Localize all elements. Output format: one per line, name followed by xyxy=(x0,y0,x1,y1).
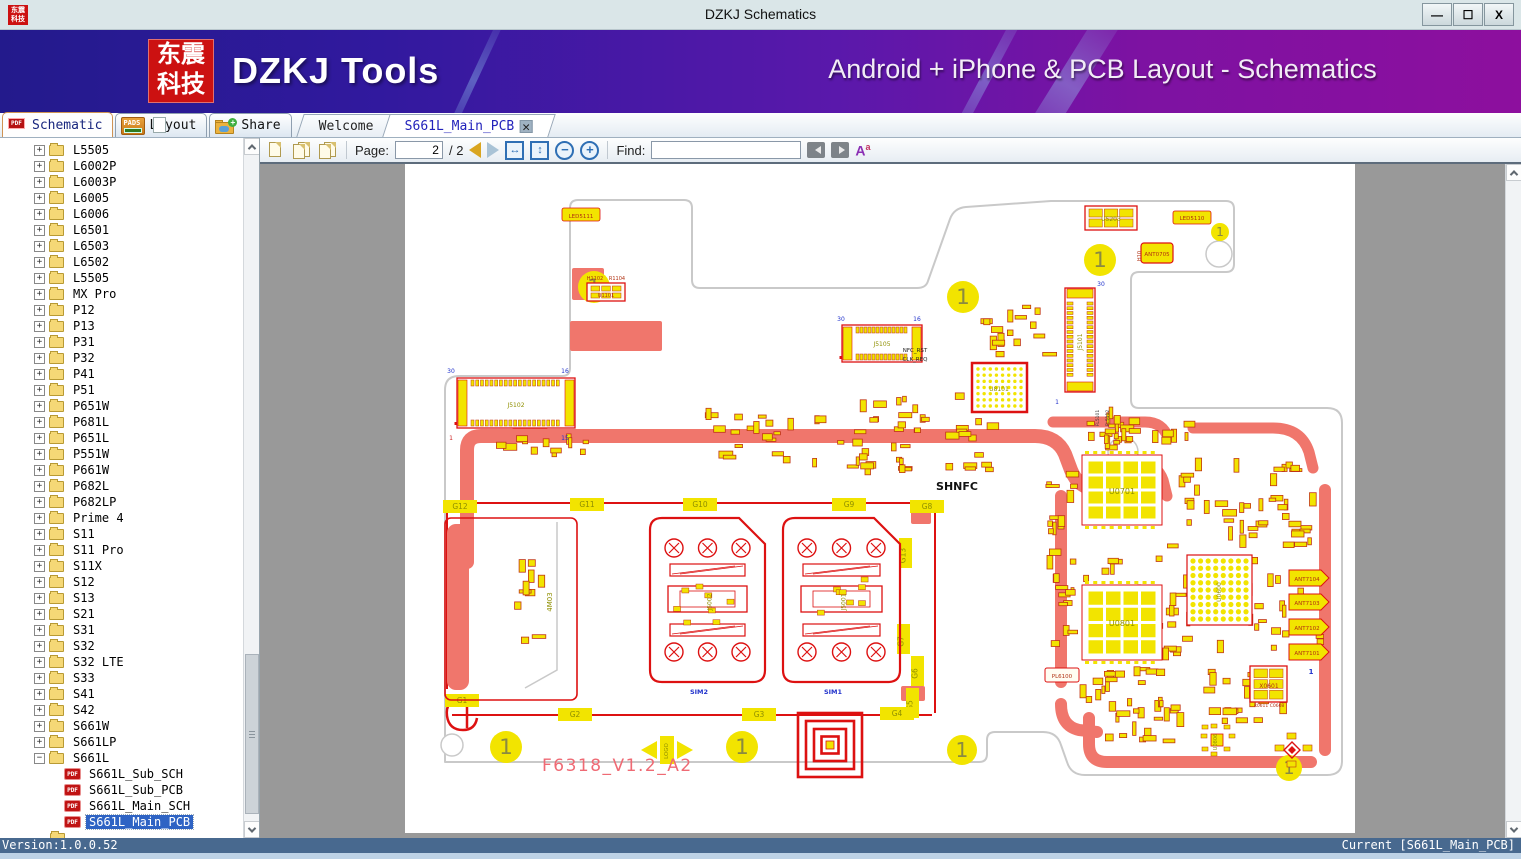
svg-text:G2: G2 xyxy=(570,710,581,719)
tree-expand-icon[interactable]: + xyxy=(34,625,45,636)
status-bar-strip xyxy=(0,853,1521,859)
tree-folder-p551w[interactable]: +P551W xyxy=(0,446,243,462)
fit-width-button[interactable]: ↔ xyxy=(505,141,524,160)
tree-expand-icon[interactable]: + xyxy=(34,321,45,332)
tree-guide xyxy=(0,830,50,838)
svg-text:U8101: U8101 xyxy=(989,386,1009,393)
tree-folder-l6006[interactable]: +L6006 xyxy=(0,206,243,222)
svg-text:J5101: J5101 xyxy=(1077,333,1084,351)
tree-doc-s661l_sub_pcb[interactable]: PDFS661L_Sub_PCB xyxy=(0,782,243,798)
svg-text:1: 1 xyxy=(956,285,970,310)
find-previous-button[interactable] xyxy=(807,142,825,158)
tree-item-label: L5505 xyxy=(70,271,112,285)
tree-item-label: P551W xyxy=(70,447,112,461)
tree-folder-l5505[interactable]: +L5505 xyxy=(0,270,243,286)
tree-expand-icon[interactable]: − xyxy=(34,753,45,764)
tree-item-label: S32 xyxy=(70,639,98,653)
share-folder-icon: + xyxy=(215,118,237,134)
tree-expand-icon[interactable]: + xyxy=(34,273,45,284)
svg-text:1: 1 xyxy=(735,735,749,760)
tree-item-label: P651L xyxy=(70,431,112,445)
tab-share[interactable]: +Share xyxy=(209,113,291,137)
tree-guide xyxy=(0,142,34,158)
current-document-text: Current [S661L_Main_PCB] xyxy=(1342,838,1515,853)
tree-guide xyxy=(0,558,34,574)
tree-expand-icon[interactable]: + xyxy=(34,401,45,412)
page-properties-icon[interactable] xyxy=(266,141,286,159)
tree-item-label: S661L_Main_SCH xyxy=(86,799,193,813)
tree-folder-s661w[interactable]: +S661W xyxy=(0,718,243,734)
svg-text:G6: G6 xyxy=(911,668,920,679)
rotate-page-left-icon[interactable] xyxy=(292,141,312,159)
tree-folder-l6503[interactable]: +L6503 xyxy=(0,238,243,254)
tree-guide xyxy=(0,622,34,638)
tree-folder-l6502[interactable]: +L6502 xyxy=(0,254,243,270)
tree-item-label: P651W xyxy=(70,399,112,413)
tree-expand-icon[interactable]: + xyxy=(34,641,45,652)
folder-icon xyxy=(49,641,64,652)
chevron-down-icon xyxy=(248,824,256,832)
tree-item-label: S661L_Sub_PCB xyxy=(86,783,186,797)
tree-folder-l6501[interactable]: +L6501 xyxy=(0,222,243,238)
tree-guide xyxy=(0,510,34,526)
tree-item-label: S661LP xyxy=(70,735,119,749)
tree-expand-icon[interactable]: + xyxy=(34,161,45,172)
tree-folder-s11-pro[interactable]: +S11 Pro xyxy=(0,542,243,558)
tree-guide xyxy=(0,718,34,734)
tree-folder-prime-4[interactable]: +Prime 4 xyxy=(0,510,243,526)
folder-icon xyxy=(49,273,64,284)
tree-guide xyxy=(0,686,34,702)
doc-tab-label: S661L_Main_PCB xyxy=(405,119,515,134)
tree-expand-icon[interactable]: + xyxy=(34,545,45,556)
svg-text:16: 16 xyxy=(561,368,569,375)
tree-folder-p651l[interactable]: +P651L xyxy=(0,430,243,446)
svg-text:1: 1 xyxy=(1309,668,1314,676)
tree-folder-s32[interactable]: +S32 xyxy=(0,638,243,654)
folder-icon xyxy=(49,209,64,220)
tree-expand-icon[interactable]: + xyxy=(34,417,45,428)
svg-text:U0806: U0806 xyxy=(1213,734,1219,750)
tree-guide xyxy=(0,638,34,654)
folder-icon xyxy=(49,401,64,412)
tree-item-label: P682L xyxy=(70,479,112,493)
svg-text:ANT0705: ANT0705 xyxy=(1144,252,1170,258)
tree-item-label: L5505 xyxy=(70,143,112,157)
svg-text:J5105: J5105 xyxy=(872,341,890,348)
tree-item-label: L6003P xyxy=(70,175,119,189)
banner-tagline: Android + iPhone & PCB Layout - Schemati… xyxy=(790,54,1415,85)
viewer-scroll-down-button[interactable] xyxy=(1506,821,1521,838)
viewer-toolbar: Page: / 2 ↔ ↕ − + Find: Aa xyxy=(260,138,1521,164)
tree-expand-icon[interactable]: + xyxy=(34,577,45,588)
folder-icon xyxy=(49,497,64,508)
tree-guide xyxy=(0,334,34,350)
tree-folder-s12[interactable]: +S12 xyxy=(0,574,243,590)
find-label: Find: xyxy=(616,143,645,158)
tree-expand-icon[interactable]: + xyxy=(34,385,45,396)
tree-item-label: S11 xyxy=(70,527,98,541)
tree-item-label: S42 xyxy=(70,703,98,717)
tree-guide xyxy=(0,286,34,302)
tree-guide xyxy=(0,494,34,510)
tree-folder-s13[interactable]: +S13 xyxy=(0,590,243,606)
close-tab-icon[interactable]: ✕ xyxy=(520,120,533,133)
folder-icon xyxy=(49,657,64,668)
tree-expand-icon[interactable]: + xyxy=(34,689,45,700)
model-tree: +L5505+L6002P+L6003P+L6005+L6006+L6501+L… xyxy=(0,142,243,838)
tree-item-label: P661W xyxy=(70,463,112,477)
tree-expand-icon[interactable]: + xyxy=(34,481,45,492)
tree-guide xyxy=(0,318,34,334)
tree-item-label: L6502 xyxy=(70,255,112,269)
tree-guide xyxy=(0,158,34,174)
tree-item-label: S12 xyxy=(70,575,98,589)
pdf-file-icon: PDF xyxy=(64,768,81,780)
svg-text:CLK_REQ: CLK_REQ xyxy=(903,357,929,363)
tree-folder-p32[interactable]: +P32 xyxy=(0,350,243,366)
svg-text:4M03: 4M03 xyxy=(546,592,554,611)
tree-expand-icon[interactable]: + xyxy=(34,209,45,220)
next-page-button[interactable] xyxy=(487,142,499,158)
folder-icon xyxy=(49,577,64,588)
tree-guide xyxy=(0,734,34,750)
svg-text:G4: G4 xyxy=(892,709,903,718)
svg-text:U0600: U0600 xyxy=(1216,582,1223,602)
tree-guide xyxy=(0,174,34,190)
tree-guide xyxy=(0,446,34,462)
tree-folder-p661w[interactable]: +P661W xyxy=(0,462,243,478)
document-viewer: Page: / 2 ↔ ↕ − + Find: Aa G12G11G10G9G8… xyxy=(260,138,1521,838)
tree-guide xyxy=(0,254,34,270)
tree-guide xyxy=(0,190,34,206)
pcb-page[interactable]: G12G11G10G9G8G13G7G6G5G4G3G2G111111111J5… xyxy=(405,164,1355,833)
previous-page-button[interactable] xyxy=(469,142,481,158)
viewer-scrollbar[interactable] xyxy=(1505,164,1521,838)
tree-folder-s661l[interactable]: −S661L xyxy=(0,750,243,766)
tree-guide xyxy=(0,574,34,590)
svg-text:J5102: J5102 xyxy=(506,402,524,409)
tree-expand-icon[interactable]: + xyxy=(34,369,45,380)
tree-item-label: S661L_Main_PCB xyxy=(86,815,193,829)
tree-expand-icon[interactable]: + xyxy=(34,193,45,204)
folder-icon xyxy=(49,561,64,572)
tree-item-label: S11 Pro xyxy=(70,543,127,557)
tree-item-label: L6501 xyxy=(70,223,112,237)
tree-item-label: P32 xyxy=(70,351,98,365)
tree-item-label: Prime 4 xyxy=(70,511,127,525)
zoom-in-button[interactable]: + xyxy=(580,141,599,160)
tree-folder-p31[interactable]: +P31 xyxy=(0,334,243,350)
brand-logo-line2: 科技 xyxy=(149,70,213,100)
tree-expand-icon[interactable]: + xyxy=(34,497,45,508)
tree-guide xyxy=(0,206,34,222)
svg-text:G10: G10 xyxy=(692,500,708,509)
tree-item-label: S33 xyxy=(70,671,98,685)
viewer-canvas[interactable]: G12G11G10G9G8G13G7G6G5G4G3G2G111111111J5… xyxy=(260,164,1505,838)
title-bar: 东震科技 DZKJ Schematics —☐X xyxy=(0,0,1521,30)
folder-icon xyxy=(49,513,64,524)
find-input[interactable] xyxy=(651,141,801,159)
zoom-out-button[interactable]: − xyxy=(555,141,574,160)
rotate-page-right-icon[interactable] xyxy=(318,141,338,159)
tree-expand-icon[interactable]: + xyxy=(34,353,45,364)
tree-folder-p41[interactable]: +P41 xyxy=(0,366,243,382)
svg-text:J5001: J5001 xyxy=(841,593,848,611)
tree-guide xyxy=(0,366,34,382)
svg-text:30: 30 xyxy=(447,368,455,375)
tree-folder-mx-pro[interactable]: +MX Pro xyxy=(0,286,243,302)
page-number-input[interactable] xyxy=(395,141,443,159)
tree-expand-icon[interactable]: + xyxy=(34,257,45,268)
folder-icon xyxy=(49,545,64,556)
tree-expand-icon[interactable]: + xyxy=(34,593,45,604)
tree-expand-icon[interactable]: + xyxy=(34,305,45,316)
folder-icon xyxy=(49,449,64,460)
svg-text:U5203: U5203 xyxy=(1101,216,1121,223)
folder-icon xyxy=(49,609,64,620)
folder-icon xyxy=(49,321,64,332)
tree-guide xyxy=(0,350,34,366)
tree-scroll-up-button[interactable] xyxy=(244,138,260,155)
folder-icon xyxy=(49,385,64,396)
tree-item-label: P41 xyxy=(70,367,98,381)
svg-text:30: 30 xyxy=(1097,281,1105,288)
tree-doc-s661l_main_pcb[interactable]: PDFS661L_Main_PCB xyxy=(0,814,243,830)
status-bar: Version:1.0.0.52 Current [S661L_Main_PCB… xyxy=(0,838,1521,853)
tree-item-label: P31 xyxy=(70,335,98,349)
tree-folder-s661lp[interactable]: +S661LP xyxy=(0,734,243,750)
svg-text:NFC_RST: NFC_RST xyxy=(903,348,928,354)
tree-item-label: S661W xyxy=(70,719,112,733)
tree-folder-l6002p[interactable]: +L6002P xyxy=(0,158,243,174)
tree-guide xyxy=(0,782,64,798)
svg-text:R0611 C0608: R0611 C0608 xyxy=(1254,703,1285,709)
svg-text:ANT7101: ANT7101 xyxy=(1294,651,1319,657)
match-case-icon[interactable]: Aa xyxy=(855,142,870,159)
folder-icon xyxy=(49,753,64,764)
tree-folder-p51[interactable]: +P51 xyxy=(0,382,243,398)
find-next-button[interactable] xyxy=(831,142,849,158)
tree-expand-icon[interactable]: + xyxy=(34,241,45,252)
tree-expand-icon[interactable]: + xyxy=(34,433,45,444)
tree-guide xyxy=(0,766,64,782)
tree-folder-p682l[interactable]: +P682L xyxy=(0,478,243,494)
window-title: DZKJ Schematics xyxy=(0,6,1521,22)
tree-expand-icon[interactable]: + xyxy=(34,609,45,620)
svg-text:SIM1: SIM1 xyxy=(824,688,843,696)
tree-expand-icon[interactable]: + xyxy=(34,705,45,716)
tree-guide xyxy=(0,750,34,766)
close-button[interactable]: X xyxy=(1484,3,1514,26)
tree-folder-l6003p[interactable]: +L6003P xyxy=(0,174,243,190)
tree-expand-icon[interactable]: + xyxy=(34,721,45,732)
tree-expand-icon[interactable]: + xyxy=(34,513,45,524)
tree-item-label: S13 xyxy=(70,591,98,605)
banner: 东震 科技 DZKJ Tools Android + iPhone & PCB … xyxy=(0,30,1521,113)
tree-guide xyxy=(0,654,34,670)
tree-expand-icon[interactable]: + xyxy=(34,337,45,348)
folder-icon xyxy=(49,689,64,700)
tree-item-label: S11X xyxy=(70,559,105,573)
folder-icon xyxy=(49,161,64,172)
sidebar-tree-panel: +L5505+L6002P+L6003P+L6005+L6006+L6501+L… xyxy=(0,138,260,838)
pdf-icon: PDF xyxy=(8,117,28,133)
tree-item-label: S41 xyxy=(70,687,98,701)
tree-expand-icon[interactable]: + xyxy=(34,673,45,684)
chevron-up-icon xyxy=(1510,170,1518,178)
tree-doc-s661l_main_sch[interactable]: PDFS661L_Main_SCH xyxy=(0,798,243,814)
tree-expand-icon[interactable]: + xyxy=(34,177,45,188)
folder-icon xyxy=(49,337,64,348)
tree-guide xyxy=(0,702,34,718)
maximize-button[interactable]: ☐ xyxy=(1453,3,1483,26)
svg-text:1: 1 xyxy=(499,735,513,760)
tree-folder-s31[interactable]: +S31 xyxy=(0,622,243,638)
svg-text:PL6100: PL6100 xyxy=(1052,674,1073,680)
svg-text:SHNFC: SHNFC xyxy=(936,480,978,493)
svg-text:1: 1 xyxy=(1216,225,1224,239)
svg-text:G3: G3 xyxy=(754,710,765,719)
tree-guide xyxy=(0,814,64,830)
tree-guide xyxy=(0,670,34,686)
tree-guide xyxy=(0,414,34,430)
tree-item-label: P681L xyxy=(70,415,112,429)
tree-folder-s32-lte[interactable]: +S32 LTE xyxy=(0,654,243,670)
chevron-down-icon xyxy=(1510,824,1518,832)
tree-expand-icon[interactable]: + xyxy=(34,737,45,748)
tree-guide xyxy=(0,302,34,318)
tree-expand-icon[interactable]: + xyxy=(34,561,45,572)
svg-text:ANT7103: ANT7103 xyxy=(1294,601,1320,607)
pdf-file-icon: PDF xyxy=(64,816,81,828)
tree-item-label: S661L xyxy=(70,751,112,765)
tab-schematic[interactable]: PDFSchematic xyxy=(2,112,113,137)
tree-item-label: S32 LTE xyxy=(70,655,127,669)
folder-icon xyxy=(49,593,64,604)
svg-text:U0701: U0701 xyxy=(1109,487,1135,496)
tree-guide xyxy=(0,382,34,398)
svg-text:G8: G8 xyxy=(922,502,933,511)
viewer-scroll-up-button[interactable] xyxy=(1506,164,1521,181)
tree-item-label: L6002P xyxy=(70,159,119,173)
svg-text:LED5111: LED5111 xyxy=(569,214,594,220)
svg-text:R1104: R1104 xyxy=(609,276,625,282)
folder-icon xyxy=(49,721,64,732)
folder-icon xyxy=(49,369,64,380)
tree-item-label: MX Pro xyxy=(70,287,119,301)
tree-doc-s661l_sub_sch[interactable]: PDFS661L_Sub_SCH xyxy=(0,766,243,782)
toolbar-separator xyxy=(346,141,347,159)
tree-folder-l5505[interactable]: +L5505 xyxy=(0,142,243,158)
tree-folder-p13[interactable]: +P13 xyxy=(0,318,243,334)
tree-item-label: P13 xyxy=(70,319,98,333)
svg-text:H1102: H1102 xyxy=(587,276,603,282)
tool-tabs: PDFSchematicPADSLayout+Share xyxy=(0,112,292,137)
tree-scrollbar-thumb[interactable] xyxy=(245,654,259,814)
tree-item-label: S21 xyxy=(70,607,98,621)
tree-scrollbar[interactable] xyxy=(243,138,259,838)
doc-tab-s661l_main_pcb[interactable]: S661L_Main_PCB✕ xyxy=(383,114,556,137)
tree-folder-s21[interactable]: +S21 xyxy=(0,606,243,622)
folder-icon xyxy=(49,353,64,364)
tab-bar: PDFSchematicPADSLayout+Share WelcomeS661… xyxy=(0,113,1521,138)
folder-icon xyxy=(49,257,64,268)
tree-folder-s11x[interactable]: +S11X xyxy=(0,558,243,574)
tree-expand-icon[interactable]: + xyxy=(34,289,45,300)
tree-folder-s33[interactable]: +S33 xyxy=(0,670,243,686)
tree-item-label: P51 xyxy=(70,383,98,397)
svg-text:G9: G9 xyxy=(844,500,855,509)
app-window: 东震科技 DZKJ Schematics —☐X 东震 科技 DZKJ Tool… xyxy=(0,0,1521,859)
tab-label: Schematic xyxy=(32,118,102,133)
tree-guide xyxy=(0,238,34,254)
document-tabs: WelcomeS661L_Main_PCB✕ xyxy=(300,114,546,137)
svg-text:ANT7102: ANT7102 xyxy=(1294,626,1319,632)
svg-text:16: 16 xyxy=(913,316,921,323)
tab-label: Share xyxy=(241,118,280,133)
tree-folder-s41[interactable]: +S41 xyxy=(0,686,243,702)
folder-icon xyxy=(49,465,64,476)
tree-expand-icon[interactable]: + xyxy=(34,225,45,236)
svg-text:SIM2: SIM2 xyxy=(690,688,708,696)
tree-item-label: L6006 xyxy=(70,207,112,221)
tree-guide xyxy=(0,398,34,414)
tree-folder-partial[interactable] xyxy=(0,830,243,838)
tree-expand-icon[interactable]: + xyxy=(34,657,45,668)
tree-scroll-down-button[interactable] xyxy=(244,821,260,838)
tree-folder-l6005[interactable]: +L6005 xyxy=(0,190,243,206)
folder-icon xyxy=(49,289,64,300)
tree-folder-p12[interactable]: +P12 xyxy=(0,302,243,318)
svg-text:G11: G11 xyxy=(579,500,595,509)
tree-folder-p681l[interactable]: +P681L xyxy=(0,414,243,430)
tree-folder-s42[interactable]: +S42 xyxy=(0,702,243,718)
tree-folder-s11[interactable]: +S11 xyxy=(0,526,243,542)
svg-text:1: 1 xyxy=(956,738,969,762)
tree-expand-icon[interactable]: + xyxy=(34,449,45,460)
fit-page-button[interactable]: ↕ xyxy=(530,141,549,160)
doc-tab-welcome[interactable]: Welcome xyxy=(296,114,396,137)
tree-item-label: L6005 xyxy=(70,191,112,205)
chevron-up-icon xyxy=(248,144,256,152)
folder-icon xyxy=(49,193,64,204)
tree-expand-icon[interactable]: + xyxy=(34,529,45,540)
page-label: Page: xyxy=(355,143,389,158)
folder-icon xyxy=(49,305,64,316)
tree-item-label: S31 xyxy=(70,623,98,637)
folder-icon xyxy=(49,737,64,748)
pdf-file-icon: PDF xyxy=(64,784,81,796)
svg-text:30: 30 xyxy=(837,316,845,323)
tree-folder-p651w[interactable]: +P651W xyxy=(0,398,243,414)
pcb-drawing: G12G11G10G9G8G13G7G6G5G4G3G2G111111111J5… xyxy=(405,164,1355,833)
tree-folder-p682lp[interactable]: +P682LP xyxy=(0,494,243,510)
tree-item-label: P12 xyxy=(70,303,98,317)
folder-icon xyxy=(49,241,64,252)
tree-expand-icon[interactable]: + xyxy=(34,465,45,476)
svg-text:H10: H10 xyxy=(1137,251,1143,261)
doc-tab-label: Welcome xyxy=(318,119,373,134)
tree-guide xyxy=(0,222,34,238)
svg-text:ANT7104: ANT7104 xyxy=(1294,577,1320,583)
folder-icon xyxy=(49,625,64,636)
svg-text:X0601: X0601 xyxy=(1259,683,1279,690)
tree-expand-icon[interactable]: + xyxy=(34,145,45,156)
minimize-button[interactable]: — xyxy=(1422,3,1452,26)
tree-guide xyxy=(0,590,34,606)
pads-icon: PADS xyxy=(121,117,145,135)
